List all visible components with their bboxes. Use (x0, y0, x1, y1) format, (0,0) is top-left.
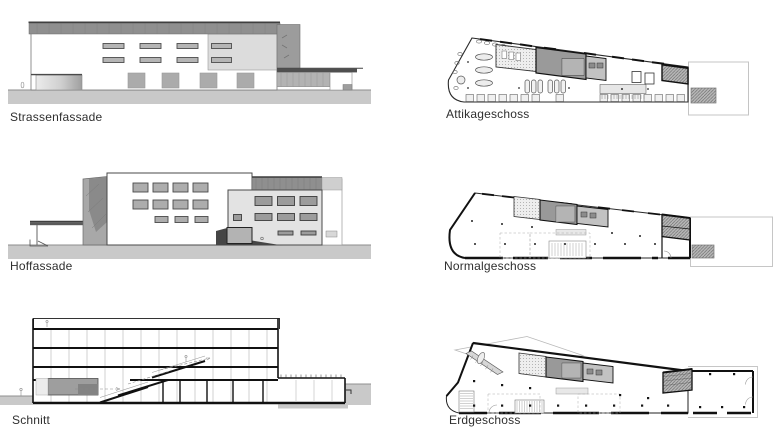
label-hoffassade: Hoffassade (10, 260, 73, 273)
right-annex (278, 375, 351, 404)
textured-tower (277, 25, 300, 73)
label-strassenfassade: Strassenfassade (10, 111, 102, 124)
wc-room (514, 197, 540, 220)
schnitt-drawing (0, 305, 390, 417)
roof-outline-below (691, 217, 773, 267)
right-roof-band (252, 178, 322, 191)
right-light-block (208, 34, 277, 70)
left-low-annex (36, 75, 82, 90)
counter (556, 230, 586, 236)
street-facade (21, 22, 363, 90)
label-attikageschoss: Attikageschoss (446, 108, 530, 121)
ground-line (8, 90, 371, 104)
entry-box (227, 228, 252, 244)
stair-left (459, 391, 474, 412)
stair-run (562, 59, 584, 76)
ground-line (8, 245, 371, 259)
annex-offset-outline (688, 367, 758, 418)
typical-plan (449, 193, 772, 267)
court-facade (30, 173, 342, 246)
counter (556, 388, 588, 394)
stair-bottom (549, 241, 586, 258)
erdgeschoss-drawing (390, 330, 780, 425)
annex-wing (688, 371, 753, 413)
label-schnitt: Schnitt (12, 414, 50, 427)
label-erdgeschoss: Erdgeschoss (449, 414, 521, 427)
hoffassade-drawing (0, 160, 390, 260)
label-normalgeschoss: Normalgeschoss (444, 260, 536, 273)
roof-band (29, 23, 280, 34)
ground-plan (446, 337, 757, 418)
right-wing-band (277, 72, 330, 86)
section-building (20, 319, 351, 404)
person-figure (21, 82, 24, 88)
normalgeschoss-drawing (390, 175, 780, 270)
attic-plan (448, 38, 748, 115)
strassenfassade-drawing (0, 10, 390, 108)
right-canopy (277, 69, 357, 73)
drawing-sheet: Strassenfassade (0, 0, 780, 448)
wc-room (519, 353, 546, 377)
